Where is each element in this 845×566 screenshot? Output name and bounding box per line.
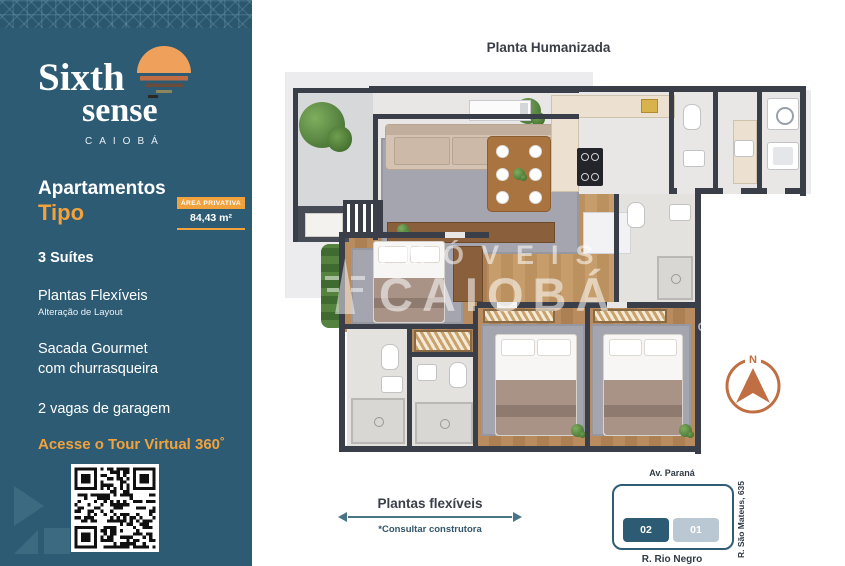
toilet (683, 104, 701, 130)
door (723, 188, 741, 194)
bathroom-sink (669, 204, 691, 221)
bathroom-sink (417, 364, 437, 381)
triangle-decoration-icon (14, 530, 38, 554)
door (677, 188, 695, 194)
watermark-line1: IMÓVEIS (379, 240, 779, 271)
street-label-bottom: R. Rio Negro (612, 554, 732, 565)
bed (495, 334, 577, 436)
heading-line2: Tipo (38, 200, 166, 225)
compass-north-label: N (749, 354, 757, 366)
feature-gourmet-balcony: Sacada Gourmet com churrasqueira (38, 340, 208, 379)
shower (415, 402, 473, 444)
watermark: IMÓVEIS CAIOBÁ CRECI: J 8806 (325, 240, 785, 334)
apartment-heading: Apartamentos Tipo (38, 178, 166, 225)
shower (351, 398, 405, 444)
toilet (381, 344, 399, 370)
location-diagram: Av. Paraná 02 01 R. Rio Negro R. São Mat… (598, 468, 798, 566)
plant (679, 424, 692, 437)
door (767, 188, 785, 194)
sidebar: Sixth sense CAIOBÁ Apartamentos Tipo ÁRE… (0, 0, 252, 566)
street-label-top: Av. Paraná (612, 468, 732, 478)
heading-line1: Apartamentos (38, 178, 166, 200)
unit-01: 01 (673, 518, 719, 542)
flyer-page: Sixth sense CAIOBÁ Apartamentos Tipo ÁRE… (0, 0, 845, 566)
toilet (449, 362, 467, 388)
logo-word-sense: sense (82, 94, 158, 128)
virtual-tour-cta[interactable]: Acesse o Tour Virtual 360˚ (38, 436, 225, 453)
bathroom-sink (381, 376, 403, 393)
kitchen-counter (551, 116, 579, 192)
stove (577, 148, 603, 186)
street-label-right: R. São Mateus, 635 (736, 472, 746, 558)
brand-logo: Sixth sense CAIOBÁ (38, 44, 218, 156)
logo-subtitle: CAIOBÁ (85, 136, 165, 147)
north-compass-icon: N (718, 348, 788, 418)
dining-table (487, 136, 551, 212)
bathroom-sink (734, 140, 754, 157)
area-badge-label: ÁREA PRIVATIVA (177, 197, 245, 209)
triangle-decoration-icon (14, 486, 44, 526)
feature-flexible-plans-note: Alteração de Layout (38, 307, 208, 318)
feature-parking: 2 vagas de garagem (38, 401, 208, 417)
private-area-badge: ÁREA PRIVATIVA 84,43 m² (177, 197, 245, 230)
plant (571, 424, 584, 437)
toilet (627, 202, 645, 228)
watermark-creci: CRECI: J 8806 (379, 320, 779, 334)
unit-02: 02 (623, 518, 669, 542)
feature-flexible-plans: Plantas Flexíveis Alteração de Layout (38, 288, 208, 318)
square-decoration-icon (44, 528, 70, 554)
page-title: Planta Humanizada (285, 40, 812, 55)
flex-note-title: Plantas flexíveis (330, 496, 530, 511)
feature-list: 3 Suítes Plantas Flexíveis Alteração de … (38, 250, 208, 439)
watermark-logo-icon (325, 258, 365, 314)
flex-note-subtitle: *Consultar construtora (330, 524, 530, 535)
cutting-board (641, 99, 658, 113)
area-badge-value: 84,43 m² (177, 209, 245, 230)
door (445, 232, 465, 238)
watermark-line2: CAIOBÁ (379, 273, 779, 318)
plant (299, 102, 345, 148)
double-arrow-icon (330, 512, 530, 522)
laundry-tank (767, 142, 799, 170)
qr-code[interactable] (71, 464, 159, 552)
washing-machine (767, 98, 799, 130)
bed (603, 334, 683, 436)
feature-suites: 3 Suítes (38, 250, 208, 266)
flexible-plans-note: Plantas flexíveis *Consultar construtora (330, 496, 530, 535)
bathroom-sink (683, 150, 705, 167)
block-outline: 02 01 (612, 484, 734, 550)
geometric-pattern-band (0, 0, 252, 28)
